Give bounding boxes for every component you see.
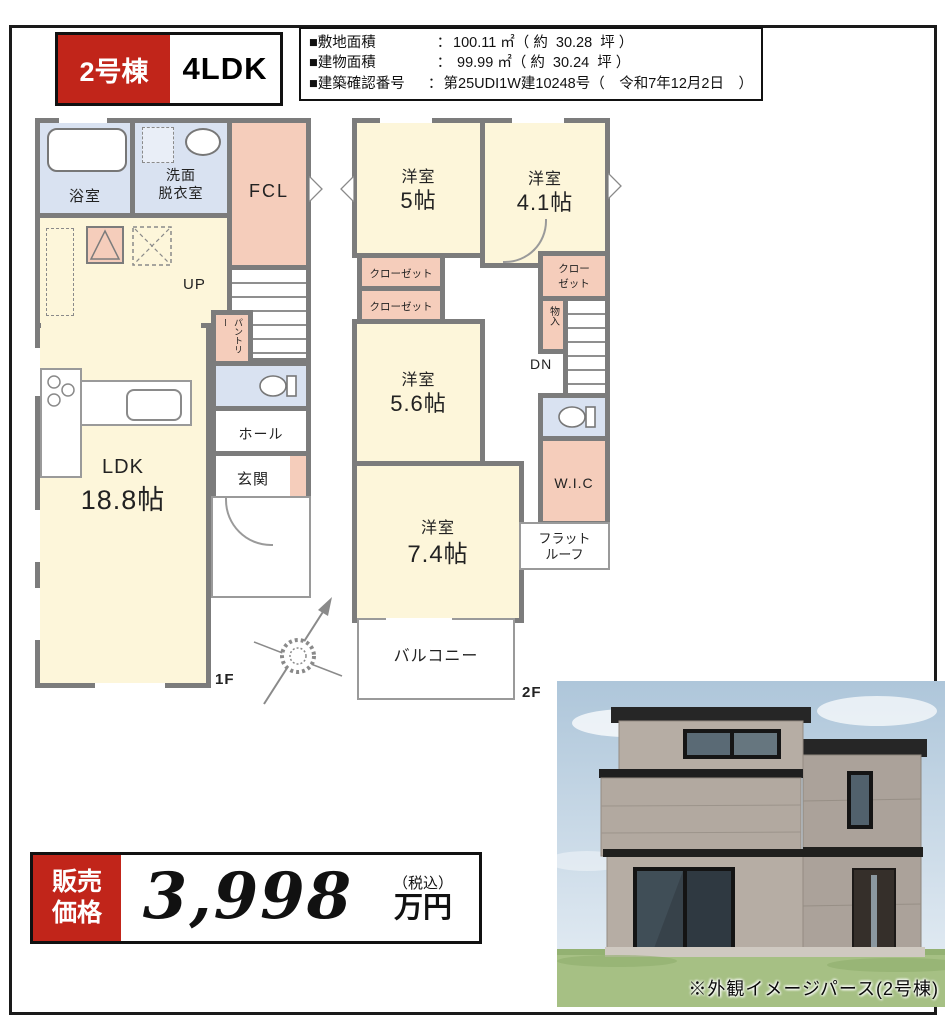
- balcony: バルコニー: [357, 618, 515, 700]
- washer-pan-icon: [142, 127, 174, 163]
- room-wic: W.I.C: [538, 436, 610, 526]
- info-colon: ：: [427, 76, 444, 93]
- toilet-icon: [557, 403, 597, 431]
- info-value: 第25UDI1W建10248号（ 令和7年12月2日 ）: [444, 76, 753, 93]
- room-yoshitsu-56: 洋室 5.6帖: [352, 319, 485, 466]
- side-window-marker: [309, 176, 323, 202]
- flyer-page: 2号棟 4LDK ■敷地面積 ： 100.11 ㎡（ 約 30.28 坪 ） ■…: [0, 0, 946, 1020]
- room-label-fcl: FCL: [232, 181, 306, 202]
- closet-c-label-1: クロー: [543, 261, 605, 276]
- floor-label-2f: 2F: [522, 684, 542, 701]
- room-bath: 浴室: [35, 118, 135, 218]
- stairs-up-label: UP: [183, 276, 206, 293]
- counter-dashed-outline: [46, 228, 74, 316]
- washer-space-icon: [132, 226, 172, 266]
- room-label-washroom-2: 脱衣室: [135, 183, 227, 203]
- render-caption: ※外観イメージパース(2号棟): [688, 975, 939, 1001]
- info-colon: ：: [435, 35, 453, 52]
- info-label: ■敷地面積: [309, 35, 435, 52]
- window-tick: [35, 510, 40, 562]
- room-yoshitsu-74: 洋室 7.4帖: [352, 461, 524, 623]
- info-row-building-area: ■建物面積 ： 99.99 ㎡（ 約 30.24 坪 ）: [309, 55, 753, 72]
- side-window-marker: [608, 173, 622, 199]
- room-label-hall: ホール: [216, 424, 306, 444]
- price-label-line2: 価格: [52, 898, 102, 929]
- price-amount-wrap: 3,998: [121, 855, 375, 941]
- closet-c-label-2: ゼット: [543, 276, 605, 291]
- window-tick: [380, 118, 432, 123]
- room-size-ldk: 18.8帖: [40, 478, 206, 517]
- kitchen-island-sink: [80, 380, 192, 426]
- toilet-icon: [258, 372, 298, 400]
- sink-basin-icon: [126, 389, 182, 421]
- room-washroom: 洗面 脱衣室: [130, 118, 232, 218]
- kitchen-ldk-opening: [41, 319, 201, 331]
- room-toilet-1f: [211, 361, 311, 411]
- compass-icon: [248, 590, 348, 715]
- bathtub-icon: [47, 128, 127, 172]
- price-label: 販売 価格: [33, 855, 121, 941]
- stairs-down-label: DN: [530, 356, 552, 372]
- room-label-74-2: 7.4帖: [357, 534, 519, 569]
- storage-label: 物入: [546, 306, 561, 326]
- price-box: 販売 価格 3,998 （税込） 万円: [30, 852, 482, 944]
- room-hall: ホール: [211, 406, 311, 456]
- room-yoshitsu-5: 洋室 5帖: [352, 118, 485, 258]
- window-tick: [59, 118, 107, 123]
- room-label-ldk: LDK: [40, 456, 206, 479]
- room-ldk: LDK 18.8帖: [35, 323, 211, 688]
- room-label-bath: 浴室: [40, 185, 130, 206]
- closet-a-label: クローゼット: [362, 266, 440, 281]
- building-badge: 2号棟 4LDK: [55, 32, 283, 106]
- info-row-confirmation-number: ■建築確認番号 ： 第25UDI1W建10248号（ 令和7年12月2日 ）: [309, 76, 753, 93]
- window-tick: [386, 618, 452, 623]
- price-amount: 3,998: [143, 859, 353, 934]
- price-unit: 万円: [394, 893, 452, 925]
- balcony-label: バルコニー: [359, 642, 513, 666]
- refrigerator-icon: [86, 226, 124, 264]
- room-kitchen: [35, 213, 232, 328]
- room-label-5-2: 5帖: [357, 183, 480, 215]
- info-colon: ：: [435, 55, 453, 72]
- info-value: 99.99 ㎡（ 約 30.24 坪 ）: [453, 55, 630, 72]
- property-info-box: ■敷地面積 ： 100.11 ㎡（ 約 30.28 坪 ） ■建物面積 ： 99…: [299, 27, 763, 101]
- floor-label-1f: 1F: [215, 671, 235, 688]
- stove-burners-icon: [42, 370, 80, 430]
- room-label-washroom-1: 洗面: [135, 165, 227, 185]
- sink-icon: [185, 128, 221, 156]
- window-tick: [95, 683, 165, 688]
- window-tick: [512, 118, 564, 123]
- room-fcl: FCL: [227, 118, 311, 270]
- flat-roof: フラット ルーフ: [519, 522, 610, 570]
- room-label-pantry: パントリー: [219, 318, 245, 361]
- room-label-genkan: 玄関: [208, 468, 298, 489]
- price-label-line1: 販売: [52, 867, 102, 898]
- room-toilet-2f: [538, 393, 610, 441]
- stairs-down: [563, 296, 610, 398]
- room-label-56-2: 5.6帖: [357, 386, 480, 418]
- floorplan-2f: 洋室 5帖 洋室 4.1帖 クローゼット クローゼット クロー ゼット 物入 D…: [352, 118, 610, 712]
- price-tax-note: （税込）: [393, 872, 453, 893]
- building-number-label: 2号棟: [58, 35, 170, 103]
- house-render-illustration: [557, 681, 945, 1007]
- porch: [211, 496, 311, 598]
- room-label-41-2: 4.1帖: [485, 185, 605, 217]
- layout-type-label: 4LDK: [170, 35, 280, 103]
- info-row-land-area: ■敷地面積 ： 100.11 ㎡（ 約 30.28 坪 ）: [309, 35, 753, 52]
- info-value: 100.11 ㎡（ 約 30.28 坪 ）: [453, 35, 633, 52]
- price-unit-wrap: （税込） 万円: [375, 855, 479, 941]
- room-yoshitsu-41: 洋室 4.1帖: [480, 118, 610, 268]
- info-label: ■建物面積: [309, 55, 435, 72]
- exterior-render: ※外観イメージパース(2号棟): [557, 681, 945, 1007]
- flat-roof-label-2: ルーフ: [521, 544, 608, 563]
- room-pantry: パントリー: [211, 310, 253, 366]
- window-tick: [35, 588, 40, 640]
- closet-b-label: クローゼット: [362, 299, 440, 314]
- info-label: ■建築確認番号: [309, 76, 427, 93]
- room-genkan: 玄関: [211, 451, 311, 501]
- wic-label: W.I.C: [543, 475, 605, 491]
- side-window-marker: [340, 176, 354, 202]
- window-tick: [35, 348, 40, 396]
- door-arc: [225, 498, 273, 546]
- closet-c: クロー ゼット: [538, 251, 610, 301]
